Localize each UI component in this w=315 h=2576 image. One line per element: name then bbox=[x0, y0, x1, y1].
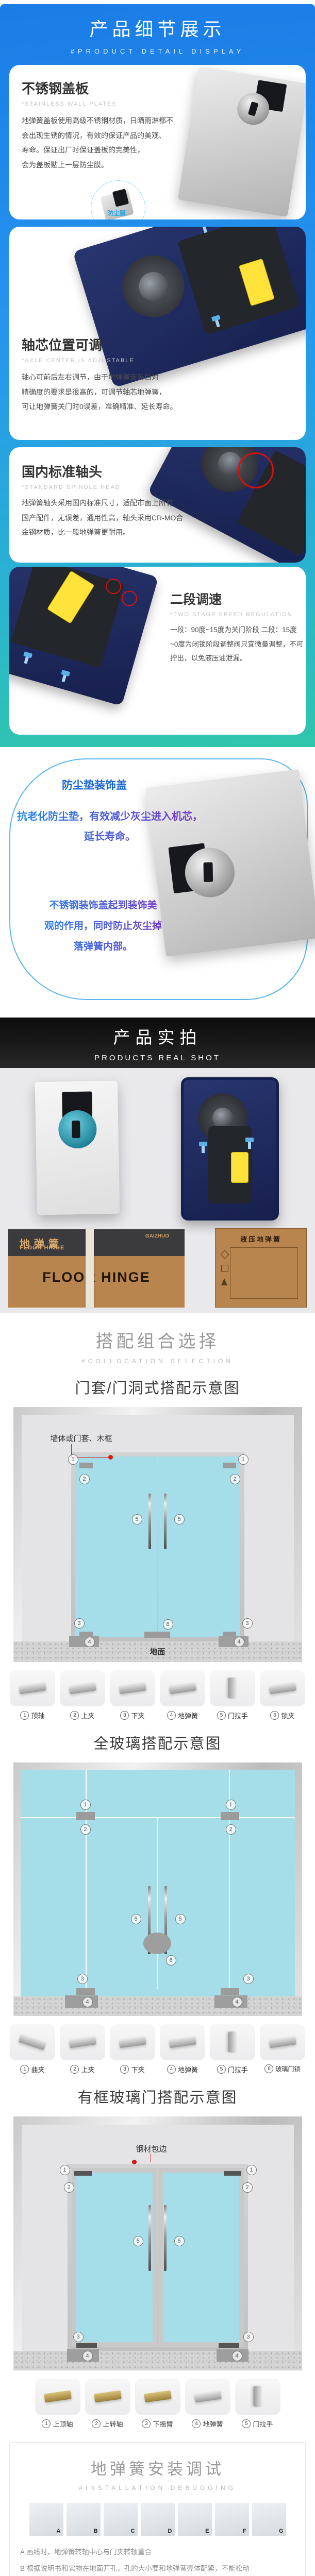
card-title-en: *TWO STAGE SPEED REGULATION bbox=[170, 612, 306, 618]
part-num: 4 bbox=[192, 2419, 201, 2428]
part-thumb bbox=[85, 2379, 130, 2415]
part-thumb bbox=[260, 1670, 305, 1706]
part-num: 3 bbox=[142, 2419, 151, 2428]
marker-4: 4 bbox=[82, 2351, 93, 2361]
part-label: 上转轴 bbox=[103, 2419, 123, 2429]
box-big-en: FLOOR HINGE bbox=[8, 1269, 185, 1285]
card-line: 寿命。保证出厂时保证盖板的完美性， bbox=[22, 143, 173, 158]
card-text: 轴芯位置可调 *AXLE CENTER IS ADJUSTABLE 轴心可前后左… bbox=[22, 335, 177, 414]
part-thumb bbox=[160, 1670, 205, 1706]
marker-2: 2 bbox=[79, 1474, 90, 1484]
stainless-plate-photo bbox=[178, 66, 306, 217]
part-item: 5门拉手 bbox=[235, 2379, 280, 2429]
part-label: 顶轴 bbox=[31, 1710, 44, 1720]
install-photos: A B C D E F G bbox=[20, 2503, 295, 2536]
card-title: 轴芯位置可调 bbox=[22, 335, 177, 354]
marker-4: 4 bbox=[232, 1997, 242, 2007]
marker-3: 3 bbox=[74, 1618, 85, 1629]
speed-valve-photo bbox=[9, 567, 158, 706]
dust-line: 不锈钢装饰盖起到装饰美 bbox=[26, 895, 180, 916]
white-floor-spring-photo bbox=[35, 1081, 120, 1215]
carton-box-photo: 地弹簧 FLOOR HINGE GAIZHUO FLOOR HINGE bbox=[8, 1229, 185, 1308]
part-item: 6玻璃门锁 bbox=[260, 2024, 305, 2074]
part-label: 下夹 bbox=[131, 1710, 144, 1720]
detail-card-speed: 二段调速 *TWO STAGE SPEED REGULATION 一段：90度~… bbox=[9, 567, 306, 735]
install-photo: D bbox=[141, 2503, 175, 2536]
part-label: 地弹簧 bbox=[178, 1710, 198, 1720]
part-label: 上夹 bbox=[81, 1710, 94, 1720]
part-label: 地弹簧 bbox=[178, 2064, 198, 2074]
install-photo: F bbox=[215, 2503, 249, 2536]
parts-strip-1: 1顶轴 2上夹 3下夹 4地弹簧 5门拉手 6锁夹 bbox=[0, 1670, 315, 1720]
diagram1-callout: 墙体或门套、木框 bbox=[51, 1433, 112, 1444]
card-line: 金钢材质，比一般地弹簧更耐用。 bbox=[22, 525, 183, 540]
part-thumb bbox=[35, 2379, 80, 2415]
marker-2: 2 bbox=[242, 2182, 253, 2193]
part-num: 1 bbox=[20, 2065, 29, 2074]
diagram-all-glass: 1 1 2 2 5 5 6 3 3 4 4 bbox=[13, 1762, 302, 2016]
part-item: 3下夹 bbox=[110, 1670, 155, 1720]
card-line: ~0度为闭锁阶段调整阀只宜微量调整，不可 bbox=[170, 637, 306, 652]
diagram3-title: 有框玻璃门搭配示意图 bbox=[0, 2086, 315, 2107]
part-num: 3 bbox=[120, 1711, 129, 1720]
part-num: 4 bbox=[167, 2065, 176, 2074]
install-title: 地弹簧安装调试 bbox=[20, 2456, 295, 2479]
card-title-en: *AXLE CENTER IS ADJUSTABLE bbox=[22, 358, 177, 364]
installation-section: 地弹簧安装调试 #INSTALLATION DEBUGGING A B C D … bbox=[9, 2442, 306, 2576]
part-thumb bbox=[160, 2024, 205, 2060]
marker-6: 6 bbox=[163, 1619, 173, 1630]
part-thumb bbox=[185, 2379, 230, 2415]
marker-3: 3 bbox=[243, 2332, 254, 2342]
realshot-header: 产品实拍 PRODUCTS REAL SHOT bbox=[0, 1018, 315, 1068]
marker-5: 5 bbox=[131, 1914, 141, 1924]
part-thumb bbox=[210, 2024, 255, 2060]
card-line: 可让地弹簧关门时0误差，准确精准、延长寿命。 bbox=[22, 399, 177, 414]
card-line: 会出现生锈的情况，有效的保证产品的美观、 bbox=[22, 128, 173, 143]
framed-door-left bbox=[72, 2168, 157, 2347]
part-label: 曲夹 bbox=[31, 2064, 44, 2074]
part-label: 门拉手 bbox=[253, 2419, 273, 2429]
install-steps: A 画线时，地弹簧转轴中心与门夹转轴重合 B 根据说明书和实物在地面开孔，孔的大… bbox=[20, 2544, 295, 2576]
install-photo: C bbox=[104, 2503, 138, 2536]
dust-title: 防尘垫装饰盖 bbox=[62, 777, 127, 792]
detail-card-stainless: 不锈钢盖板 *STAINLESS WALL PLATES 地弹簧盖板使用高级不锈… bbox=[9, 65, 306, 219]
dust-cover-section: 防尘垫装饰盖 抗老化防尘垫，有效减少灰尘进入机芯， 延长寿命。 不锈钢装饰盖起到… bbox=[0, 747, 315, 1018]
card-text: 二段调速 *TWO STAGE SPEED REGULATION 一段：90度~… bbox=[170, 589, 306, 666]
part-label: 锁夹 bbox=[281, 1710, 294, 1720]
marker-2: 2 bbox=[230, 1474, 240, 1484]
part-item: 2上夹 bbox=[60, 1670, 105, 1720]
marker-2: 2 bbox=[226, 1824, 236, 1835]
parts-strip-3: 1上顶轴 2上转轴 3下摇臂 4地弹簧 5门拉手 bbox=[0, 2379, 315, 2434]
marker-1: 1 bbox=[226, 1800, 236, 1810]
part-item: 1顶轴 bbox=[10, 1670, 55, 1720]
part-thumb bbox=[10, 2024, 55, 2060]
card-title-en: *STANDARD SPINDLE HEAD bbox=[22, 484, 183, 490]
install-photo: B bbox=[67, 2503, 101, 2536]
marker-5: 5 bbox=[174, 2236, 185, 2246]
part-num: 5 bbox=[242, 2419, 251, 2428]
detail-header: 产品细节展示 #PRODUCT DETAIL DISPLAY bbox=[0, 4, 315, 65]
part-label: 下摇臂 bbox=[153, 2419, 173, 2429]
part-item: 5门拉手 bbox=[210, 1670, 255, 1720]
part-label: 地弹簧 bbox=[203, 2419, 223, 2429]
marker-5: 5 bbox=[132, 1514, 142, 1524]
part-item: 2上转轴 bbox=[85, 2379, 130, 2429]
card-line: 地弹簧轴头采用国内标准尺寸，适配市面上所有 bbox=[22, 496, 183, 511]
part-thumb bbox=[235, 2379, 280, 2415]
part-item: 1上顶轴 bbox=[35, 2379, 80, 2429]
part-item: 4地弹簧 bbox=[160, 1670, 205, 1720]
part-label: 上夹 bbox=[81, 2064, 94, 2074]
part-thumb bbox=[110, 2024, 155, 2060]
part-num: 2 bbox=[92, 2419, 101, 2428]
box-label-en: FLOOR HINGE bbox=[20, 1245, 64, 1251]
marker-1: 1 bbox=[238, 1454, 248, 1465]
card-title: 二段调速 bbox=[170, 589, 306, 608]
install-subtitle-en: #INSTALLATION DEBUGGING bbox=[20, 2484, 295, 2492]
marker-4: 4 bbox=[82, 1997, 93, 2007]
card-line: 轴心可前后左右调节，由于地弹簧安装后对 bbox=[22, 370, 177, 385]
card-text: 不锈钢盖板 *STAINLESS WALL PLATES 地弹簧盖板使用高级不锈… bbox=[22, 78, 173, 173]
marker-1: 1 bbox=[60, 2165, 70, 2175]
card-line: 拧出，以免液压油泄漏。 bbox=[170, 651, 306, 666]
part-thumb bbox=[10, 1670, 55, 1706]
marker-5: 5 bbox=[133, 2236, 143, 2246]
card-line: 地弹簧盖板使用高级不锈钢材质，日晒雨淋都不 bbox=[22, 113, 173, 128]
page-title: 产品细节展示 bbox=[89, 14, 225, 41]
card-line: 精确度的要求是很高的，可调节轴芯地弹簧， bbox=[22, 385, 177, 400]
card-title: 不锈钢盖板 bbox=[22, 78, 173, 97]
card-title: 国内标准轴头 bbox=[22, 462, 183, 481]
card-line: 国产配件，无误差，通用性高，轴头采用CR-MO合 bbox=[22, 511, 183, 526]
diagram3-callout: 钢材包边 bbox=[136, 2143, 167, 2154]
install-step: A 画线时，地弹簧转轴中心与门夹转轴重合 bbox=[20, 2544, 295, 2561]
glass-door-left bbox=[75, 1456, 157, 1637]
realshot-subtitle: PRODUCTS REAL SHOT bbox=[94, 1054, 221, 1062]
dust-film-label: 防尘膜 bbox=[107, 209, 126, 217]
ground-granite bbox=[13, 2351, 302, 2370]
parts-strip-2: 1曲夹 2上夹 3下夹 4地弹簧 5门拉手 6玻璃门锁 bbox=[0, 2024, 315, 2074]
marker-5: 5 bbox=[175, 1914, 186, 1924]
card-title-en: *STAINLESS WALL PLATES bbox=[22, 101, 173, 107]
marker-1: 1 bbox=[246, 2165, 257, 2175]
part-item: 3下夹 bbox=[110, 2024, 155, 2074]
highlight-ring bbox=[238, 452, 274, 488]
door-unit bbox=[68, 2164, 248, 2351]
marker-4: 4 bbox=[232, 2351, 242, 2361]
diagram1-title: 门套/门洞式搭配示意图 bbox=[0, 1376, 315, 1398]
marker-1: 1 bbox=[80, 1800, 91, 1810]
dust-line: 抗老化防尘垫，有效减少灰尘进入机芯， bbox=[14, 808, 205, 823]
page-subtitle-en: #PRODUCT DETAIL DISPLAY bbox=[71, 47, 245, 55]
card-text: 国内标准轴头 *STANDARD SPINDLE HEAD 地弹簧轴头采用国内标… bbox=[22, 462, 183, 540]
navy-floor-spring-photo bbox=[181, 1077, 279, 1221]
install-photo: G bbox=[252, 2503, 286, 2536]
part-label: 玻璃门锁 bbox=[275, 2064, 300, 2073]
part-num: 6 bbox=[270, 1711, 279, 1720]
part-num: 1 bbox=[42, 2419, 51, 2428]
part-item: 1曲夹 bbox=[10, 2024, 55, 2074]
framed-door-right bbox=[158, 2168, 244, 2347]
part-num: 5 bbox=[217, 1711, 226, 1720]
part-num: 4 bbox=[167, 1711, 176, 1720]
diagram-framed-glass: 钢材包边 1 1 2 2 5 5 3 3 4 4 bbox=[13, 2116, 302, 2370]
install-step: B 根据说明书和实物在地面开孔，孔的大小要和地弹簧壳体配紧，不能松动 bbox=[20, 2561, 295, 2576]
part-label: 门拉手 bbox=[228, 2064, 248, 2074]
lock-photo bbox=[143, 1933, 171, 1954]
carton-box2-photo: 液压地弹簧 bbox=[215, 1228, 307, 1308]
marker-6: 6 bbox=[166, 1955, 176, 1965]
dust-line: 落弹簧内部。 bbox=[26, 937, 180, 957]
part-item: 3下摇臂 bbox=[135, 2379, 180, 2429]
ground-granite bbox=[13, 1996, 302, 2016]
detail-card-spindle: 国内标准轴头 *STANDARD SPINDLE HEAD 地弹簧轴头采用国内标… bbox=[9, 447, 306, 563]
part-item: 6锁夹 bbox=[260, 1670, 305, 1720]
part-thumb bbox=[60, 2024, 105, 2060]
box2-title: 液压地弹簧 bbox=[215, 1234, 306, 1244]
collocation-section: 搭配组合选择 #COLLOCATION SELECTION 门套/门洞式搭配示意… bbox=[0, 1313, 315, 2434]
install-photo: E bbox=[178, 2503, 212, 2536]
door-unit bbox=[71, 1452, 244, 1641]
part-thumb bbox=[210, 1670, 255, 1706]
realshot-photo: 地弹簧 FLOOR HINGE GAIZHUO FLOOR HINGE 液压地弹… bbox=[0, 1068, 315, 1313]
part-label: 门拉手 bbox=[228, 1710, 248, 1720]
part-item: 4地弹簧 bbox=[185, 2379, 230, 2429]
collocation-subtitle-en: #COLLOCATION SELECTION bbox=[0, 1358, 315, 1365]
product-detail-page: 产品细节展示 #PRODUCT DETAIL DISPLAY 不锈钢盖板 *ST… bbox=[0, 0, 315, 2576]
part-item: 4地弹簧 bbox=[160, 2024, 205, 2074]
marker-5: 5 bbox=[174, 1514, 185, 1524]
detail-section: 产品细节展示 #PRODUCT DETAIL DISPLAY 不锈钢盖板 *ST… bbox=[0, 4, 315, 747]
marker-3: 3 bbox=[243, 1974, 254, 1984]
marker-4: 4 bbox=[85, 1637, 95, 1647]
part-item: 2上夹 bbox=[60, 2024, 105, 2074]
part-thumb bbox=[60, 1670, 105, 1706]
install-photo: A bbox=[29, 2503, 63, 2536]
part-label: 下夹 bbox=[131, 2064, 144, 2074]
diagram-door-frame: 墙体或门套、木框 1 1 2 2 5 5 6 3 3 4 4 地面 bbox=[13, 1407, 302, 1662]
part-num: 2 bbox=[70, 2065, 79, 2074]
part-num: 6 bbox=[264, 2064, 273, 2073]
detail-card-axle: 轴芯位置可调 *AXLE CENTER IS ADJUSTABLE 轴心可前后左… bbox=[9, 227, 306, 440]
part-thumb bbox=[135, 2379, 180, 2415]
marker-1: 1 bbox=[68, 1454, 78, 1465]
part-num: 5 bbox=[217, 2065, 226, 2074]
diagram2-title: 全玻璃搭配示意图 bbox=[0, 1732, 315, 1753]
marker-2: 2 bbox=[64, 2182, 74, 2193]
part-thumb bbox=[260, 2024, 305, 2060]
part-thumb bbox=[110, 1670, 155, 1706]
marker-3: 3 bbox=[242, 1618, 253, 1629]
part-num: 2 bbox=[70, 1711, 79, 1720]
box-brand: GAIZHUO bbox=[145, 1233, 169, 1239]
realshot-title: 产品实拍 bbox=[113, 1024, 202, 1048]
marker-2: 2 bbox=[80, 1824, 91, 1835]
part-item: 5门拉手 bbox=[210, 2024, 255, 2074]
ground-label: 地面 bbox=[13, 1646, 302, 1657]
dust-line: 观的作用，同时防止灰尘掉 bbox=[26, 916, 180, 937]
card-line: 会为盖板贴上一层防尘膜。 bbox=[22, 158, 173, 173]
glass-door-right bbox=[158, 1456, 240, 1637]
marker-3: 3 bbox=[77, 1974, 88, 1984]
collocation-title: 搭配组合选择 bbox=[0, 1327, 315, 1352]
marker-3: 3 bbox=[73, 2332, 84, 2342]
dust-line: 延长寿命。 bbox=[14, 828, 205, 843]
card-line: 一段：90度~15度为关门阶段 二段：15度 bbox=[170, 623, 306, 637]
part-num: 3 bbox=[120, 2065, 129, 2074]
part-num: 1 bbox=[20, 1711, 29, 1720]
part-label: 上顶轴 bbox=[53, 2419, 73, 2429]
marker-4: 4 bbox=[234, 1637, 244, 1647]
